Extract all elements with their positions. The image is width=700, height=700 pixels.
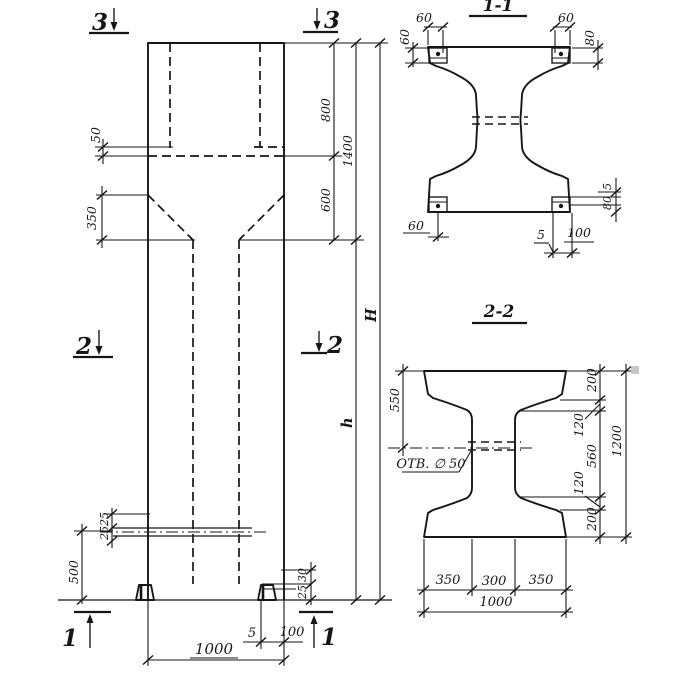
drawing-sheet: 3 3 2 2 1 1 (0, 0, 700, 700)
dim-120-bottom: 120 (571, 471, 586, 495)
section-marker-3-left: 3 (89, 8, 129, 36)
dim-5-right: 5 (601, 183, 614, 190)
dim-200-top: 200 (584, 368, 599, 393)
section-marker-1-left: 1 (62, 612, 111, 652)
marker-label: 1 (62, 625, 78, 652)
dim-25-upper: 25 (98, 512, 111, 527)
section-2-2-hole: ОТВ. ∅ 50 (388, 442, 533, 472)
dim-200-bottom: 200 (584, 507, 599, 532)
dim-50: 50 (88, 127, 103, 143)
dim-60-bottom-left: 60 (408, 218, 424, 233)
dim-25-foot: 25 (296, 585, 309, 600)
section-marker-2-left: 2 (73, 330, 113, 360)
dim-80-right: 80 (601, 196, 614, 210)
dim-1000: 1000 (195, 640, 234, 658)
dim-1000-bottom: 1000 (479, 595, 512, 610)
dim-5-bottom: 5 (537, 227, 545, 242)
marker-label: 2 (326, 332, 343, 359)
marker-label: 3 (324, 7, 340, 34)
section-1-1-outline (428, 47, 570, 212)
drawing-canvas: 3 3 2 2 1 1 (0, 0, 700, 700)
hidden-lines (148, 43, 284, 584)
dim-80-top-right: 80 (582, 30, 597, 46)
dim-350-left: 350 (436, 573, 461, 588)
dim-800: 800 (318, 98, 333, 122)
dim-h: h (339, 417, 356, 428)
dim-300: 300 (482, 574, 507, 589)
marker-label: 1 (321, 624, 337, 651)
scan-artifact (631, 366, 639, 374)
dim-500: 500 (66, 560, 81, 584)
section-2-2-title: 2-2 (483, 302, 515, 322)
dim-1400: 1400 (340, 135, 355, 167)
dim-100-bottom: 100 (567, 225, 591, 240)
dim-550: 550 (387, 388, 402, 412)
hole-label: ОТВ. ∅ 50 (396, 457, 465, 472)
section-2-2-dim-lines (395, 364, 632, 618)
dim-1200: 1200 (609, 425, 624, 457)
dim-350: 350 (84, 206, 99, 230)
dim-60-top-right: 60 (558, 10, 574, 25)
section-2-2-labels: 550 200 120 560 120 200 1200 350 300 350… (387, 368, 624, 610)
dim-60-top-left: 60 (416, 10, 432, 25)
section-marker-3-right: 3 (303, 7, 340, 34)
dim-560: 560 (584, 444, 599, 468)
dim-30: 30 (296, 568, 309, 582)
dim-60-top-left-rot: 60 (397, 29, 412, 45)
dimension-labels: 800 600 1400 h H 50 350 25 25 500 30 25 … (66, 98, 380, 658)
dim-600: 600 (318, 188, 333, 212)
embedded-plate-mid (100, 528, 266, 536)
dim-120-top: 120 (571, 413, 586, 437)
dim-350-right: 350 (529, 573, 554, 588)
dim-100: 100 (280, 625, 305, 640)
section-1-1-title: 1-1 (483, 0, 514, 16)
column-base-shoes (136, 585, 276, 600)
section-2-2-outline (424, 371, 566, 537)
dim-5: 5 (248, 626, 256, 641)
section-1-1-view: 1-1 (397, 0, 621, 258)
section-marker-2-right: 2 (301, 331, 343, 359)
section-1-1-embed-plates (429, 48, 621, 212)
elevation-view: 3 3 2 2 1 1 (58, 7, 392, 666)
dim-H: H (363, 307, 380, 323)
section-marker-1-right: 1 (299, 612, 337, 651)
section-2-2-view: 2-2 ОТВ. ∅ 50 (387, 302, 639, 618)
dim-25-lower: 25 (98, 526, 111, 541)
